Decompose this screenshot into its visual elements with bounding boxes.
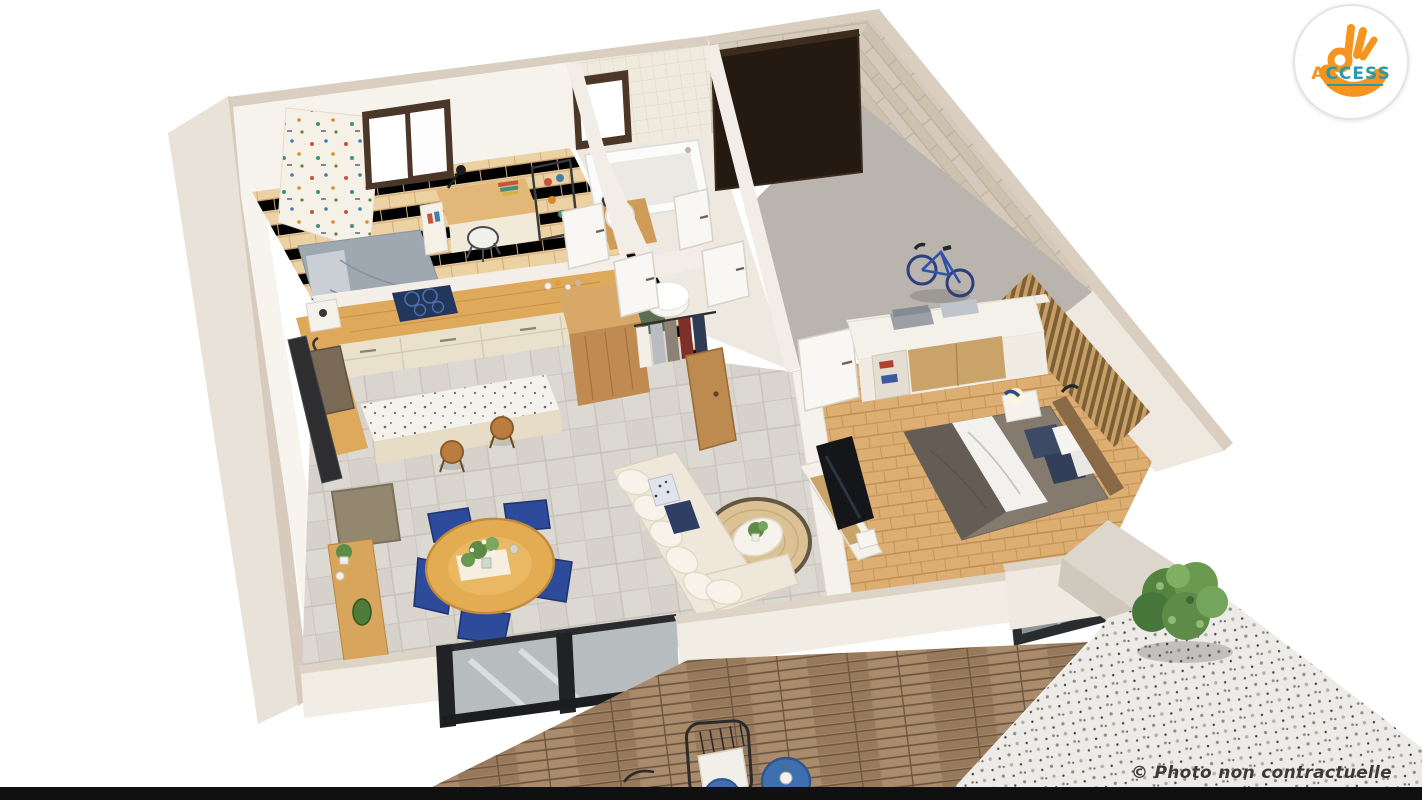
bathtub-drain bbox=[685, 147, 691, 153]
bedroom-door-leaf bbox=[798, 328, 859, 411]
drinking-glass bbox=[510, 545, 519, 554]
floor-plan-3d-render bbox=[0, 0, 1422, 800]
candle bbox=[780, 772, 792, 784]
shrub-shadow bbox=[1137, 641, 1233, 663]
access-logo: ACCESS bbox=[1293, 4, 1409, 120]
logo-letters-rest: CCESS bbox=[1325, 64, 1390, 84]
logo-letter-accent: A bbox=[1311, 64, 1325, 84]
door-leaf bbox=[674, 189, 713, 250]
floor-plan-screenshot: ACCESS © Photo non contractuelle bbox=[0, 0, 1422, 800]
entry-doormat bbox=[332, 484, 400, 548]
childrens-room-window bbox=[362, 99, 454, 190]
door-leaf bbox=[614, 252, 659, 317]
green-wall-art bbox=[353, 599, 371, 625]
logo-wordmark: ACCESS bbox=[1293, 64, 1409, 84]
nightstand bbox=[1002, 388, 1041, 422]
logo-underline bbox=[1327, 84, 1383, 86]
ok-hand-icon bbox=[1293, 4, 1409, 120]
photo-disclaimer-watermark: © Photo non contractuelle bbox=[1131, 763, 1392, 783]
door-leaf bbox=[702, 241, 749, 307]
bottom-letterbox-bar bbox=[0, 787, 1422, 800]
coffee-machine bbox=[306, 299, 341, 332]
door-leaf bbox=[562, 203, 609, 269]
